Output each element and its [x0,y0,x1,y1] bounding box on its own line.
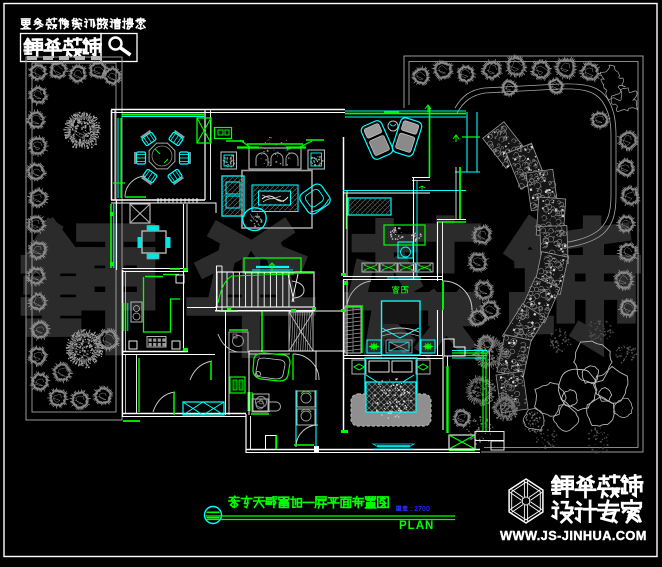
svg-text:PLAN: PLAN [399,520,434,532]
svg-text:WWW.JS-JINHUA.COM: WWW.JS-JINHUA.COM [500,528,647,543]
svg-text:: 2700: : 2700 [410,506,430,513]
